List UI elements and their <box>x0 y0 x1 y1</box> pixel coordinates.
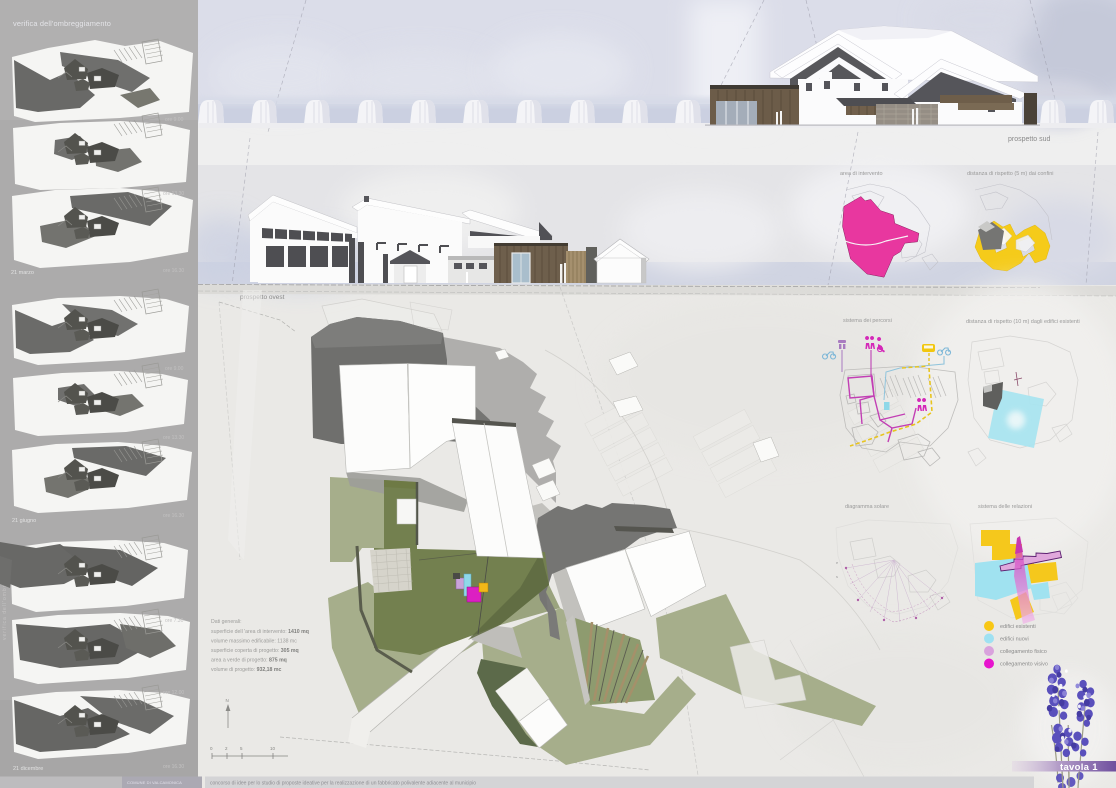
svg-text:verifica dell'ombreggiamento: verifica dell'ombreggiamento <box>13 19 111 28</box>
svg-text:distanza di rispetto (5 m) dai: distanza di rispetto (5 m) dai confini <box>967 171 1054 177</box>
svg-text:volume di progetto: 932,18 mc: volume di progetto: 932,18 mc <box>211 667 281 673</box>
svg-text:area di intervento: area di intervento <box>840 171 883 177</box>
svg-text:ore 9.00: ore 9.00 <box>165 117 184 123</box>
svg-text:ore 16.30: ore 16.30 <box>163 764 184 770</box>
svg-text:area a verde di progetto: 875: area a verde di progetto: 875 mq <box>211 658 287 664</box>
svg-text:distanza di rispetto (10 m) da: distanza di rispetto (10 m) dagli edific… <box>966 319 1080 325</box>
svg-text:collegamento fisico: collegamento fisico <box>1000 649 1047 655</box>
svg-text:sistema dei percorsi: sistema dei percorsi <box>843 318 892 324</box>
svg-text:sistema delle relazioni: sistema delle relazioni <box>978 504 1032 510</box>
svg-text:collegamento visivo: collegamento visivo <box>1000 662 1048 668</box>
svg-text:ore 13.30: ore 13.30 <box>163 435 184 441</box>
svg-text:ore 9.00: ore 9.00 <box>165 366 184 372</box>
svg-text:s: s <box>836 574 838 579</box>
svg-text:21 marzo: 21 marzo <box>11 270 34 276</box>
svg-text:ore 7.30: ore 7.30 <box>165 618 184 624</box>
svg-text:superficie dell 'area di inter: superficie dell 'area di intervento: 141… <box>211 629 309 635</box>
svg-text:COMUNE DI VALCAMONICA: COMUNE DI VALCAMONICA <box>127 780 182 785</box>
svg-text:diagramma solare: diagramma solare <box>845 504 889 510</box>
svg-text:N: N <box>226 698 229 703</box>
svg-text:ore 16.30: ore 16.30 <box>163 513 184 519</box>
svg-text:10: 10 <box>270 746 276 751</box>
svg-text:21 giugno: 21 giugno <box>12 518 36 524</box>
svg-text:ore 12.00: ore 12.00 <box>163 690 184 696</box>
svg-text:volume massimo edificabile: 11: volume massimo edificabile: 1138 mc <box>211 639 297 645</box>
svg-text:ore 13.30: ore 13.30 <box>163 191 184 197</box>
svg-text:21 dicembre: 21 dicembre <box>13 766 43 772</box>
svg-text:ore 16.30: ore 16.30 <box>163 268 184 274</box>
svg-text:concorso di idee per lo studio: concorso di idee per lo studio di propos… <box>210 781 476 787</box>
svg-text:Dati generali:: Dati generali: <box>211 619 242 625</box>
svg-text:tavola 1: tavola 1 <box>1060 762 1098 773</box>
svg-text:prospetto sud: prospetto sud <box>1008 136 1051 143</box>
svg-text:edifici nuovi: edifici nuovi <box>1000 637 1029 643</box>
svg-text:superficie coperta di progetto: superficie coperta di progetto: 305 mq <box>211 648 299 654</box>
svg-text:edifici esistenti: edifici esistenti <box>1000 624 1036 630</box>
